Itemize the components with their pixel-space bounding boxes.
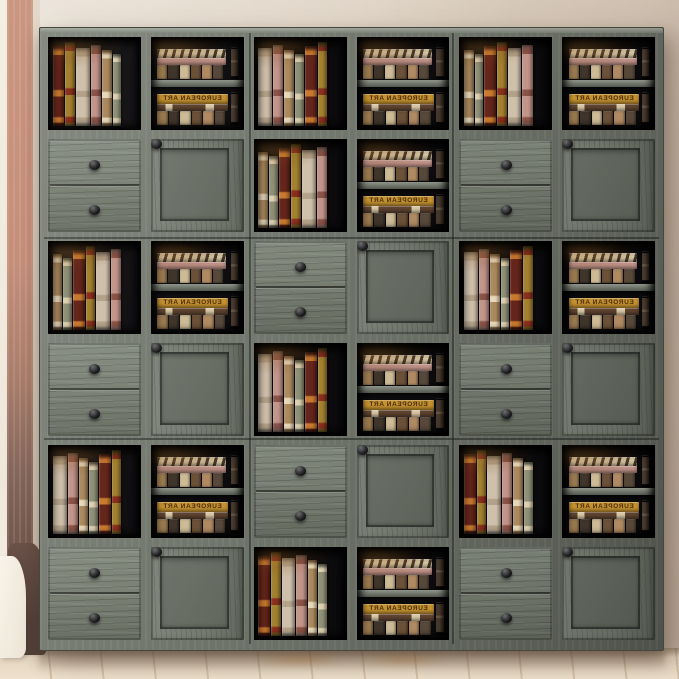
mini-book-spine bbox=[157, 65, 167, 79]
mini-book-spine bbox=[169, 519, 179, 533]
mini-book-spine bbox=[409, 111, 419, 125]
mini-book-spine bbox=[602, 65, 612, 79]
horizontal-book bbox=[157, 104, 228, 111]
mini-book-spine bbox=[202, 269, 212, 283]
mini-book-spine bbox=[157, 519, 167, 533]
mini-book-spine bbox=[409, 621, 419, 635]
two-tier-shelf-cube: EUROPEAN ART bbox=[357, 37, 450, 130]
book-spine bbox=[279, 148, 291, 228]
book-spine bbox=[258, 48, 272, 126]
mini-book-spine bbox=[157, 473, 167, 487]
drawer-knob bbox=[501, 613, 512, 623]
book-spine-label: EUROPEAN ART bbox=[569, 94, 640, 104]
book-spine bbox=[318, 348, 328, 433]
mini-book-spine bbox=[374, 371, 384, 385]
book-spine bbox=[73, 250, 85, 330]
mini-book-spine bbox=[626, 519, 636, 533]
open-cube-with-books bbox=[48, 241, 141, 334]
mini-book-row bbox=[157, 315, 225, 329]
book-spine bbox=[513, 458, 523, 534]
barn-door-panel bbox=[160, 148, 229, 221]
mini-book-row bbox=[569, 269, 635, 283]
door-knob bbox=[357, 241, 368, 251]
book-spine bbox=[273, 45, 283, 126]
horizontal-book: EUROPEAN ART bbox=[363, 94, 434, 104]
mini-book-spine bbox=[580, 519, 590, 533]
mini-book-spine bbox=[397, 417, 407, 431]
shelf-divider bbox=[357, 182, 450, 189]
drawer-knob bbox=[89, 613, 100, 623]
mini-book-spine bbox=[203, 519, 213, 533]
barn-door-cube bbox=[562, 343, 655, 436]
horizontal-book: EUROPEAN ART bbox=[363, 400, 434, 410]
horizontal-book bbox=[157, 253, 226, 262]
barn-door-panel bbox=[160, 556, 229, 629]
open-cube-with-books bbox=[459, 241, 552, 334]
book-stack: EUROPEAN ART bbox=[157, 496, 228, 533]
book-stack bbox=[363, 552, 432, 589]
mini-book-spine bbox=[603, 315, 613, 329]
book-spine-label: EUROPEAN ART bbox=[569, 502, 640, 512]
drawer-knob bbox=[89, 205, 100, 215]
mini-book-spine bbox=[569, 519, 579, 533]
vertical-book bbox=[436, 602, 443, 635]
book-spine bbox=[76, 48, 90, 126]
mini-book-row bbox=[363, 575, 429, 589]
book-stack bbox=[363, 348, 432, 385]
mini-book-spine bbox=[580, 315, 590, 329]
book-spine bbox=[53, 254, 63, 330]
book-stack: EUROPEAN ART bbox=[363, 190, 434, 227]
book-spine bbox=[464, 252, 478, 330]
two-drawer-cube bbox=[48, 547, 141, 640]
floor-reflection bbox=[39, 651, 665, 675]
drawer-knob bbox=[295, 466, 306, 476]
book-spine bbox=[65, 42, 75, 127]
horizontal-book: EUROPEAN ART bbox=[157, 298, 228, 308]
mini-book-row bbox=[363, 371, 429, 385]
mini-book-spine bbox=[168, 473, 178, 487]
mini-book-spine bbox=[168, 65, 178, 79]
mini-book-row bbox=[569, 473, 635, 487]
mini-book-spine bbox=[397, 621, 407, 635]
bookcase: EUROPEAN ARTEUROPEAN ARTEUROPEAN ARTEURO… bbox=[39, 27, 664, 651]
mini-book-spine bbox=[420, 621, 430, 635]
book-row bbox=[258, 346, 331, 432]
mini-book-spine bbox=[419, 167, 429, 181]
horizontal-book bbox=[569, 104, 640, 111]
bookcase-top-edge bbox=[40, 28, 663, 33]
vertical-book bbox=[642, 500, 649, 533]
mini-book-spine bbox=[603, 519, 613, 533]
two-tier-shelf-cube: EUROPEAN ART bbox=[357, 139, 450, 232]
open-cube-with-books bbox=[254, 139, 347, 232]
horizontal-book bbox=[363, 364, 432, 372]
mini-book-spine bbox=[580, 473, 590, 487]
book-spine bbox=[497, 42, 507, 127]
mini-book-row bbox=[569, 519, 637, 533]
mini-book-spine bbox=[192, 519, 202, 533]
horizontal-book: EUROPEAN ART bbox=[569, 502, 640, 512]
mini-book-spine bbox=[386, 417, 396, 431]
book-spine bbox=[53, 46, 65, 126]
vertical-book bbox=[642, 47, 649, 79]
two-drawer-cube bbox=[459, 139, 552, 232]
horizontal-book bbox=[157, 308, 228, 315]
mini-book-row bbox=[569, 65, 635, 79]
book-spine bbox=[464, 454, 476, 534]
mini-book-spine bbox=[374, 213, 384, 227]
open-cube-with-books bbox=[254, 37, 347, 130]
mini-book-spine bbox=[602, 473, 612, 487]
book-spine bbox=[282, 558, 296, 636]
barn-door-cube bbox=[151, 139, 244, 232]
book-spine-label: EUROPEAN ART bbox=[569, 298, 640, 308]
horizontal-book: EUROPEAN ART bbox=[363, 604, 434, 614]
mini-book-spine bbox=[420, 111, 430, 125]
horizontal-book bbox=[363, 559, 432, 568]
book-spine bbox=[295, 360, 304, 433]
mini-book-spine bbox=[408, 65, 418, 79]
mini-book-spine bbox=[614, 519, 624, 533]
book-spine bbox=[305, 46, 317, 126]
book-stack: EUROPEAN ART bbox=[569, 496, 640, 533]
mini-book-spine bbox=[363, 167, 373, 181]
shelf-divider bbox=[357, 590, 450, 597]
module-seam bbox=[44, 237, 659, 239]
barn-door-x-plank bbox=[160, 180, 229, 190]
mini-book-spine bbox=[180, 111, 190, 125]
book-stack bbox=[569, 246, 638, 283]
book-spine bbox=[113, 54, 122, 127]
book-row bbox=[258, 550, 331, 636]
book-spine bbox=[464, 50, 474, 126]
book-stack: EUROPEAN ART bbox=[157, 88, 228, 125]
horizontal-book bbox=[569, 58, 638, 66]
horizontal-book bbox=[157, 466, 226, 474]
book-spine bbox=[501, 258, 510, 331]
horizontal-book bbox=[569, 466, 638, 474]
book-row bbox=[464, 40, 537, 126]
mini-book-spine bbox=[203, 315, 213, 329]
book-spine bbox=[284, 50, 294, 126]
mini-book-spine bbox=[157, 315, 167, 329]
mini-book-spine bbox=[386, 213, 396, 227]
door-knob bbox=[151, 139, 162, 149]
mini-book-spine bbox=[396, 575, 406, 589]
mini-book-spine bbox=[396, 167, 406, 181]
mini-book-spine bbox=[624, 269, 634, 283]
shelf-divider bbox=[357, 80, 450, 87]
mini-book-spine bbox=[602, 269, 612, 283]
mini-book-spine bbox=[624, 65, 634, 79]
mini-book-spine bbox=[626, 111, 636, 125]
shelf-divider bbox=[151, 80, 244, 87]
mini-book-spine bbox=[591, 269, 601, 283]
book-spine bbox=[53, 456, 67, 534]
open-cube-with-books bbox=[254, 343, 347, 436]
mini-book-spine bbox=[180, 519, 190, 533]
barn-door-cube bbox=[151, 343, 244, 436]
book-spine bbox=[273, 351, 283, 432]
mini-book-spine bbox=[192, 315, 202, 329]
book-row bbox=[53, 40, 126, 126]
horizontal-book bbox=[569, 308, 640, 315]
horizontal-book bbox=[363, 355, 432, 364]
mini-book-spine bbox=[385, 167, 395, 181]
book-spine bbox=[317, 147, 327, 228]
horizontal-book bbox=[157, 457, 226, 466]
horizontal-book bbox=[157, 58, 226, 66]
book-spine bbox=[284, 356, 294, 432]
floor-warm-reflection bbox=[358, 652, 448, 667]
book-spine-label: EUROPEAN ART bbox=[363, 94, 434, 104]
vertical-book bbox=[231, 455, 238, 487]
mini-book-row bbox=[363, 417, 431, 431]
book-row bbox=[464, 448, 537, 534]
open-cube-with-books bbox=[459, 445, 552, 538]
horizontal-book bbox=[157, 262, 226, 270]
vertical-book bbox=[436, 92, 443, 125]
book-spine bbox=[318, 564, 327, 637]
mini-book-spine bbox=[386, 111, 396, 125]
book-spine-label: EUROPEAN ART bbox=[157, 298, 228, 308]
mini-book-spine bbox=[213, 269, 223, 283]
book-spine bbox=[111, 249, 121, 330]
mini-book-spine bbox=[363, 417, 373, 431]
book-spine bbox=[308, 560, 318, 636]
book-stack: EUROPEAN ART bbox=[363, 88, 434, 125]
door-knob bbox=[357, 445, 368, 455]
book-stack bbox=[157, 450, 226, 487]
vertical-book bbox=[436, 557, 443, 589]
mini-book-spine bbox=[374, 167, 384, 181]
book-spine bbox=[302, 150, 316, 228]
barn-door-panel bbox=[571, 352, 640, 425]
drawer-knob bbox=[295, 307, 306, 317]
book-stack bbox=[157, 42, 226, 79]
horizontal-book bbox=[569, 49, 638, 58]
mini-book-spine bbox=[191, 269, 201, 283]
barn-door-x-plank bbox=[571, 588, 640, 598]
book-stack: EUROPEAN ART bbox=[569, 292, 640, 329]
mini-book-spine bbox=[569, 473, 579, 487]
drawer-knob bbox=[501, 160, 512, 170]
mini-book-spine bbox=[180, 473, 190, 487]
barn-door-panel bbox=[366, 454, 435, 527]
mini-book-row bbox=[569, 315, 637, 329]
horizontal-book bbox=[363, 160, 432, 168]
barn-door-x-plank bbox=[366, 282, 435, 292]
mini-book-spine bbox=[215, 519, 225, 533]
drawer-knob bbox=[295, 511, 306, 521]
mini-book-spine bbox=[168, 269, 178, 283]
open-cube-with-books bbox=[254, 547, 347, 640]
two-drawer-cube bbox=[254, 445, 347, 538]
door-knob bbox=[151, 547, 162, 557]
mini-book-spine bbox=[213, 65, 223, 79]
two-drawer-cube bbox=[254, 241, 347, 334]
drawer-knob bbox=[501, 364, 512, 374]
shelf-divider bbox=[357, 386, 450, 393]
barn-door-panel bbox=[571, 148, 640, 221]
mini-book-row bbox=[363, 65, 429, 79]
horizontal-book bbox=[363, 151, 432, 160]
two-tier-shelf-cube: EUROPEAN ART bbox=[151, 241, 244, 334]
book-spine-label: EUROPEAN ART bbox=[157, 94, 228, 104]
mini-book-row bbox=[363, 111, 431, 125]
mini-book-spine bbox=[419, 371, 429, 385]
mini-book-spine bbox=[592, 519, 602, 533]
mini-book-spine bbox=[614, 111, 624, 125]
book-stack bbox=[157, 246, 226, 283]
mini-book-spine bbox=[409, 417, 419, 431]
drawer-knob bbox=[295, 262, 306, 272]
cabinet-grid: EUROPEAN ARTEUROPEAN ARTEUROPEAN ARTEURO… bbox=[48, 37, 655, 640]
mini-book-spine bbox=[191, 65, 201, 79]
mini-book-spine bbox=[569, 269, 579, 283]
mini-book-row bbox=[157, 269, 223, 283]
horizontal-book bbox=[157, 49, 226, 58]
horizontal-book: EUROPEAN ART bbox=[569, 298, 640, 308]
drawer-knob bbox=[89, 160, 100, 170]
vertical-book bbox=[642, 251, 649, 283]
mini-book-row bbox=[157, 473, 223, 487]
book-stack: EUROPEAN ART bbox=[363, 394, 434, 431]
mini-book-row bbox=[157, 65, 223, 79]
mini-book-spine bbox=[385, 371, 395, 385]
mini-book-spine bbox=[374, 111, 384, 125]
mini-book-spine bbox=[213, 473, 223, 487]
mini-book-spine bbox=[180, 315, 190, 329]
mini-book-spine bbox=[408, 167, 418, 181]
mini-book-spine bbox=[591, 473, 601, 487]
white-curtain bbox=[0, 556, 26, 658]
mini-book-spine bbox=[624, 473, 634, 487]
mini-book-spine bbox=[603, 111, 613, 125]
mini-book-spine bbox=[397, 111, 407, 125]
mini-book-spine bbox=[169, 315, 179, 329]
barn-door-cube bbox=[151, 547, 244, 640]
mini-book-spine bbox=[592, 315, 602, 329]
book-spine bbox=[99, 454, 111, 534]
barn-door-cube bbox=[562, 547, 655, 640]
mini-book-spine bbox=[157, 111, 167, 125]
mini-book-spine bbox=[374, 65, 384, 79]
book-stack: EUROPEAN ART bbox=[363, 598, 434, 635]
horizontal-book bbox=[569, 253, 638, 262]
two-tier-shelf-cube: EUROPEAN ART bbox=[562, 241, 655, 334]
shelf-divider bbox=[151, 488, 244, 495]
mini-book-spine bbox=[613, 269, 623, 283]
open-cube-with-books bbox=[48, 445, 141, 538]
vertical-book bbox=[436, 149, 443, 181]
two-tier-shelf-cube: EUROPEAN ART bbox=[151, 37, 244, 130]
mini-book-spine bbox=[569, 65, 579, 79]
book-spine bbox=[96, 252, 110, 330]
mini-book-spine bbox=[397, 213, 407, 227]
mini-book-spine bbox=[363, 371, 373, 385]
mini-book-spine bbox=[215, 315, 225, 329]
mini-book-row bbox=[363, 621, 431, 635]
barn-door-x-plank bbox=[366, 486, 435, 496]
mini-book-spine bbox=[419, 575, 429, 589]
horizontal-book bbox=[363, 104, 434, 111]
vertical-book bbox=[231, 92, 238, 125]
module-seam bbox=[44, 438, 659, 440]
mini-book-spine bbox=[191, 473, 201, 487]
mini-book-spine bbox=[180, 269, 190, 283]
mini-book-spine bbox=[363, 575, 373, 589]
mini-book-spine bbox=[192, 111, 202, 125]
mini-book-row bbox=[157, 111, 225, 125]
horizontal-book bbox=[363, 568, 432, 576]
mini-book-spine bbox=[592, 111, 602, 125]
vertical-book bbox=[436, 47, 443, 79]
vertical-book bbox=[231, 47, 238, 79]
book-stack bbox=[363, 144, 432, 181]
book-row bbox=[258, 40, 331, 126]
shelf-divider bbox=[562, 488, 655, 495]
book-spine bbox=[296, 555, 306, 636]
mini-book-spine bbox=[420, 213, 430, 227]
book-spine bbox=[479, 249, 489, 330]
two-drawer-cube bbox=[48, 139, 141, 232]
mini-book-spine bbox=[203, 111, 213, 125]
two-tier-shelf-cube: EUROPEAN ART bbox=[357, 547, 450, 640]
book-spine bbox=[86, 246, 96, 331]
book-spine bbox=[91, 45, 101, 126]
mini-book-spine bbox=[363, 65, 373, 79]
open-cube-with-books bbox=[48, 37, 141, 130]
barn-door-panel bbox=[366, 250, 435, 323]
book-spine bbox=[258, 354, 272, 432]
horizontal-book: EUROPEAN ART bbox=[157, 502, 228, 512]
mini-book-spine bbox=[385, 65, 395, 79]
mini-book-spine bbox=[363, 111, 373, 125]
mini-book-spine bbox=[569, 111, 579, 125]
vertical-book bbox=[642, 92, 649, 125]
two-drawer-cube bbox=[48, 343, 141, 436]
horizontal-book bbox=[363, 614, 434, 621]
mini-book-spine bbox=[385, 575, 395, 589]
mini-book-spine bbox=[409, 213, 419, 227]
book-row bbox=[464, 244, 537, 330]
two-tier-shelf-cube: EUROPEAN ART bbox=[151, 445, 244, 538]
book-spine bbox=[295, 54, 304, 127]
book-spine bbox=[490, 254, 500, 330]
mini-book-spine bbox=[157, 269, 167, 283]
shelf-divider bbox=[562, 284, 655, 291]
vertical-book bbox=[231, 296, 238, 329]
book-stack bbox=[363, 42, 432, 79]
barn-door-cube bbox=[357, 445, 450, 538]
mini-book-spine bbox=[569, 315, 579, 329]
mini-book-spine bbox=[408, 575, 418, 589]
barn-door-x-plank bbox=[160, 384, 229, 394]
barn-door-x-plank bbox=[160, 588, 229, 598]
book-spine bbox=[318, 42, 328, 127]
mini-book-spine bbox=[180, 65, 190, 79]
mini-book-spine bbox=[169, 111, 179, 125]
book-spine bbox=[502, 453, 512, 534]
mini-book-spine bbox=[613, 473, 623, 487]
horizontal-book bbox=[157, 512, 228, 519]
book-spine bbox=[68, 453, 78, 534]
book-spine-label: EUROPEAN ART bbox=[363, 196, 434, 206]
book-spine bbox=[112, 450, 122, 535]
mini-book-spine bbox=[614, 315, 624, 329]
